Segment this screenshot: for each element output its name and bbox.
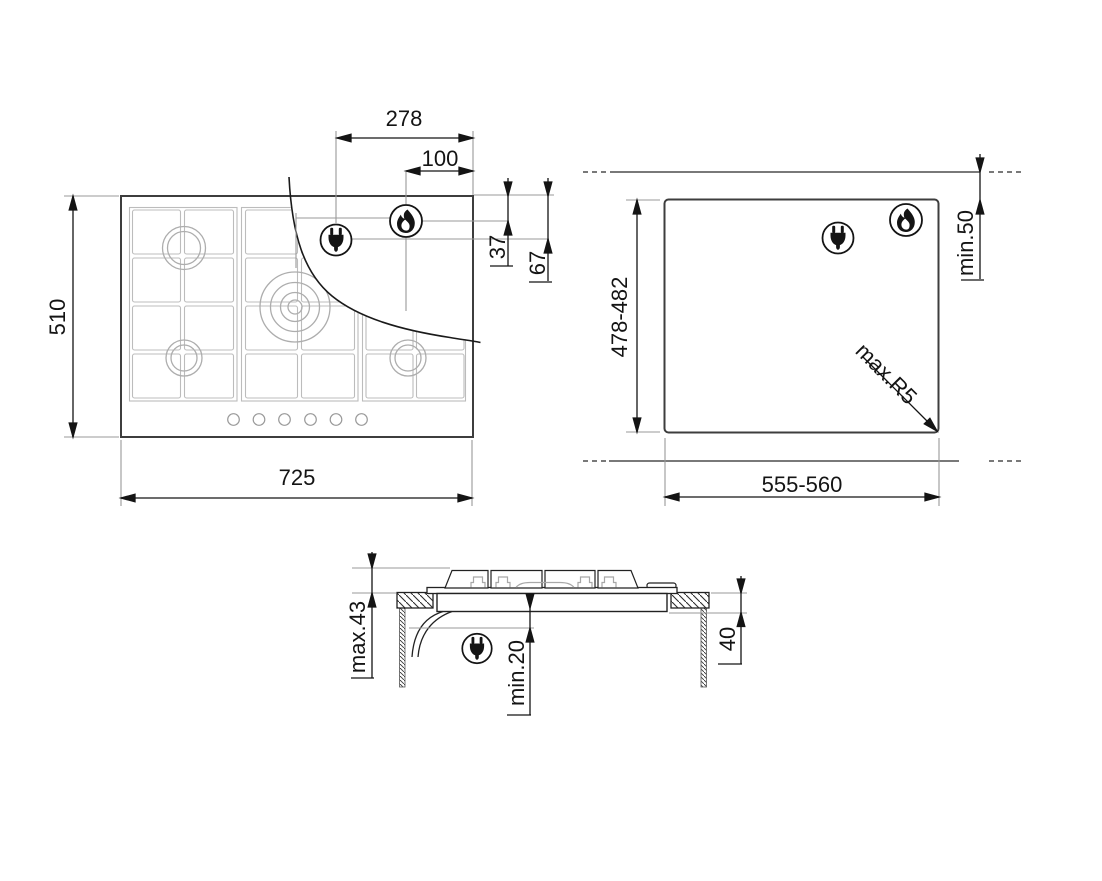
installation-diagram: 278 100 37 67 510 725 478-482 555-560 mi… — [0, 0, 1102, 881]
flame-icon — [890, 204, 922, 236]
plug-icon — [462, 634, 491, 663]
plug-icon — [823, 223, 854, 254]
diagram-linework — [0, 0, 1102, 881]
worktop-section-right — [671, 593, 709, 609]
dim-label-overall-depth: 510 — [47, 299, 69, 336]
hob-tub — [437, 594, 667, 612]
plug-icon — [321, 225, 352, 256]
worktop-cutout-view — [583, 154, 1024, 506]
flame-icon — [390, 205, 422, 237]
dim-label-overall-width: 725 — [279, 467, 316, 489]
hob-top-view — [64, 131, 554, 506]
dim-label-cutout-depth: 478-482 — [609, 277, 631, 358]
side-section-view — [351, 552, 747, 715]
dim-label-clearance-below: min.20 — [506, 640, 528, 706]
dim-label-cutout-width: 555-560 — [762, 474, 843, 496]
dim-label-rear-clearance: min.50 — [955, 210, 977, 276]
dim-label-height-above-worktop: max.43 — [347, 601, 369, 673]
worktop-section-left — [397, 593, 433, 609]
power-cable — [412, 612, 452, 658]
dim-label-plug-offset-right: 278 — [386, 108, 423, 130]
cabinet-side-left — [400, 608, 406, 687]
dim-label-plug-offset-top: 67 — [527, 251, 549, 275]
dim-label-burner-offset-top: 37 — [487, 235, 509, 259]
cabinet-side-right — [701, 608, 707, 687]
dim-label-burner-offset-right: 100 — [422, 148, 459, 170]
dim-label-recess-depth: 40 — [717, 627, 739, 651]
